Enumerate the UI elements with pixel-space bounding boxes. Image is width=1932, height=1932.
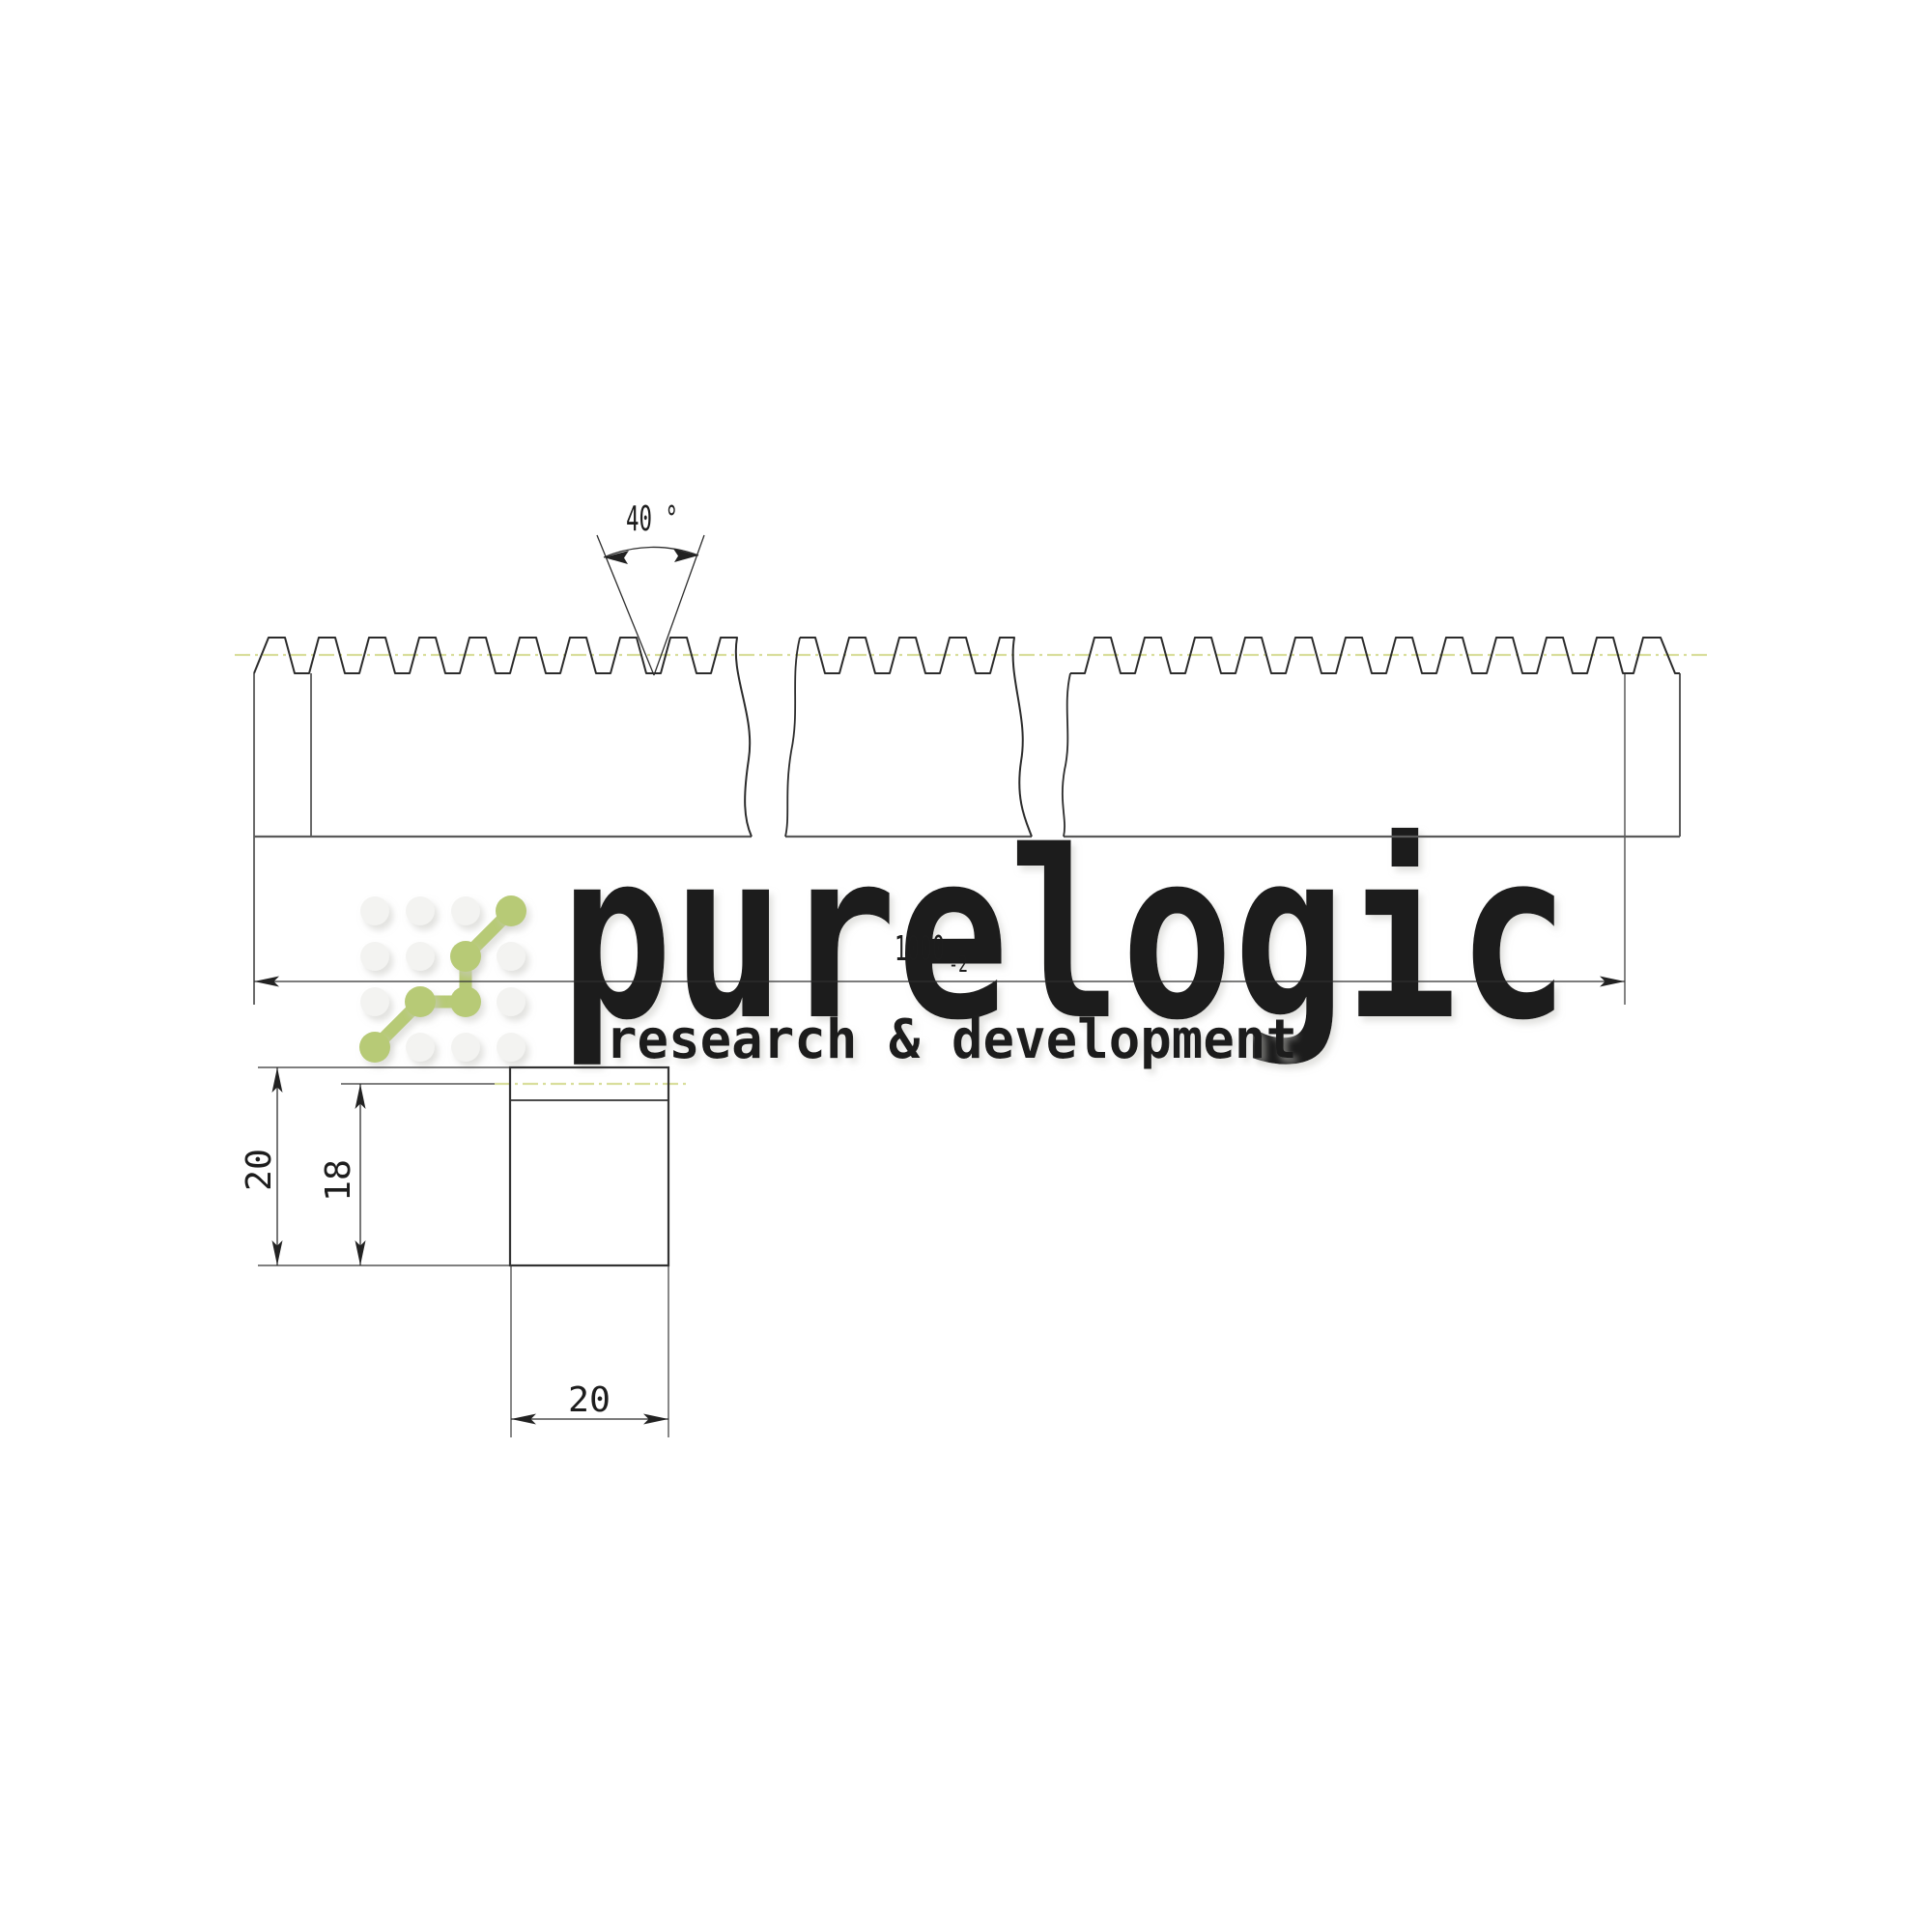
logo-gray-dot — [451, 1033, 480, 1062]
angle-value: 40 ° — [626, 499, 678, 539]
section-body — [510, 1067, 668, 1265]
logo-gray-dot — [360, 942, 389, 971]
angle-dimension: 40 ° — [597, 499, 704, 675]
watermark: purelogic research & development — [359, 801, 1570, 1071]
logo-green-dot — [359, 1032, 390, 1063]
logo-green-dot — [450, 941, 481, 972]
logo-gray-dot — [406, 1033, 435, 1062]
logo-green-dot — [450, 986, 481, 1017]
logo-green-dot — [405, 986, 436, 1017]
watermark-tagline-text: research & development — [606, 1009, 1297, 1071]
length-tolerance: -2 — [949, 951, 968, 978]
section-height-value: 20 — [240, 1149, 279, 1191]
drawing-canvas: purelogic research & development — [0, 0, 1932, 1932]
logo-gray-dot — [406, 942, 435, 971]
section-width-value: 20 — [568, 1380, 611, 1420]
logo-gray-dot — [451, 896, 480, 925]
watermark-logo-path — [375, 911, 511, 1047]
logo-gray-dot — [406, 896, 435, 925]
section-arrowheads — [272, 1067, 669, 1425]
section-view: 20 18 20 — [240, 1067, 686, 1437]
drawing-sheet: purelogic research & development — [0, 0, 1932, 1932]
logo-gray-dot — [497, 942, 526, 971]
logo-gray-dot — [497, 1033, 526, 1062]
logo-gray-dot — [360, 896, 389, 925]
length-value: 1000 — [895, 929, 945, 969]
pitch-height-value: 18 — [319, 1159, 358, 1202]
logo-gray-dot — [497, 987, 526, 1016]
logo-gray-dot — [360, 987, 389, 1016]
logo-green-dot — [496, 895, 526, 926]
